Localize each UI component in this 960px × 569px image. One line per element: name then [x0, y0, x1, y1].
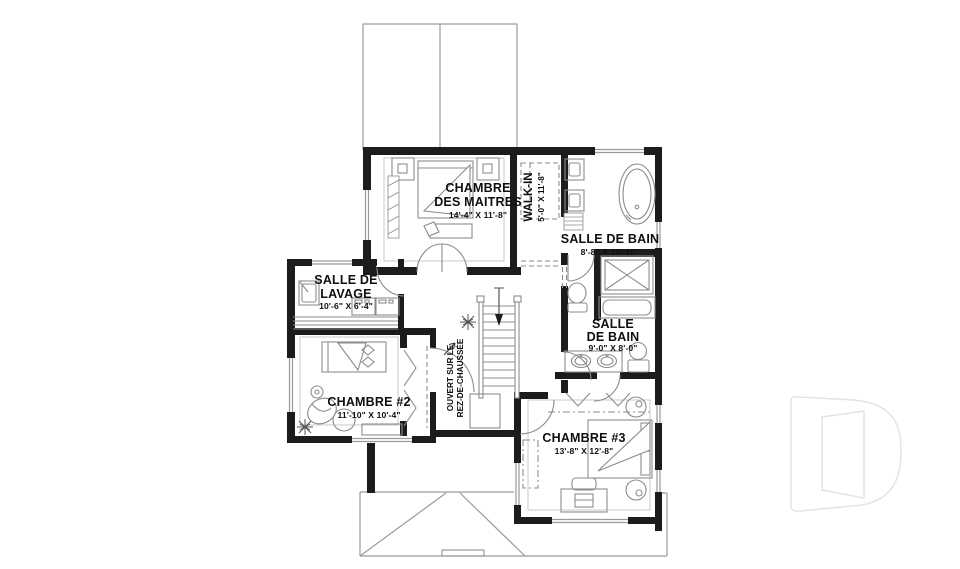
brand-d-watermark-icon: [791, 397, 901, 512]
window: [552, 517, 628, 524]
window: [363, 190, 371, 240]
wardrobe: [523, 440, 538, 488]
walk-in-label: WALK-IN: [523, 172, 535, 221]
bedroom2-dims: 11'-10" X 10'-4": [337, 410, 400, 420]
bench: [424, 222, 472, 238]
open-to-below-label-line1: OUVERT SUR LE: [446, 344, 455, 411]
bathtub: [599, 297, 655, 318]
main-bath-label: SALLE DE BAIN: [561, 232, 659, 246]
window: [352, 436, 412, 443]
plant-icon: [460, 314, 476, 330]
staircase: [470, 288, 521, 428]
window: [287, 358, 295, 412]
shower: [601, 256, 653, 294]
bedroom2-label: CHAMBRE #2: [327, 395, 410, 409]
second-bath-dims: 9'-0" X 8'-0": [589, 343, 638, 353]
main-bath-dims: 8'-8" X 13'-10": [581, 247, 640, 257]
stairs-down-arrow-icon: [494, 288, 504, 326]
bedroom3-label: CHAMBRE #3: [542, 431, 625, 445]
bed: [322, 342, 386, 372]
counter: [293, 317, 398, 329]
dryer: [376, 298, 399, 315]
side-table: [626, 480, 646, 500]
window: [514, 463, 521, 505]
linen-cabinet: [564, 213, 583, 230]
laundry-dims: 10'-6" X 6'-4": [319, 301, 373, 311]
master-bedroom-dims: 14'-4" X 11'-8": [449, 210, 507, 220]
furniture-bedroom2: [303, 342, 402, 435]
desk-chair: [572, 478, 596, 490]
window: [655, 470, 662, 492]
ottoman: [362, 424, 402, 435]
sink: [572, 355, 591, 368]
open-to-below-label-line2: REZ-DE-CHAUSSÉE: [455, 338, 465, 417]
master-bedroom-label-line2: DES MAITRES: [434, 195, 522, 209]
window: [655, 405, 662, 423]
toilet: [568, 283, 587, 312]
laundry-label-line2: LAVAGE: [320, 287, 371, 301]
master-bedroom-label-line1: CHAMBRE: [445, 181, 510, 195]
floor-plan-drawing: CHAMBRE DES MAITRES 14'-4" X 11'-8" WALK…: [0, 0, 960, 569]
dresser: [388, 176, 399, 238]
second-bath-label-line2: DE BAIN: [587, 330, 640, 344]
bedroom3-dims: 13'-8" X 12'-8": [555, 446, 614, 456]
window: [312, 259, 352, 266]
fixtures-toilet-shower: [568, 256, 655, 318]
floor-plan-canvas: CHAMBRE DES MAITRES 14'-4" X 11'-8" WALK…: [0, 0, 960, 569]
desk: [561, 489, 607, 512]
walk-in-dims: 5'-0" X 11'-8": [537, 172, 546, 222]
roof-outline-upper: [363, 24, 517, 150]
fixtures-main-bath: [564, 159, 655, 230]
second-bath-label-line1: SALLE: [592, 317, 634, 331]
laundry-label-line1: SALLE DE: [314, 273, 377, 287]
nightstand: [477, 158, 499, 180]
plant-icon: [297, 419, 313, 435]
window: [595, 147, 644, 155]
sink: [598, 355, 617, 368]
freestanding-tub: [619, 164, 655, 224]
floor-lamp: [311, 386, 323, 398]
